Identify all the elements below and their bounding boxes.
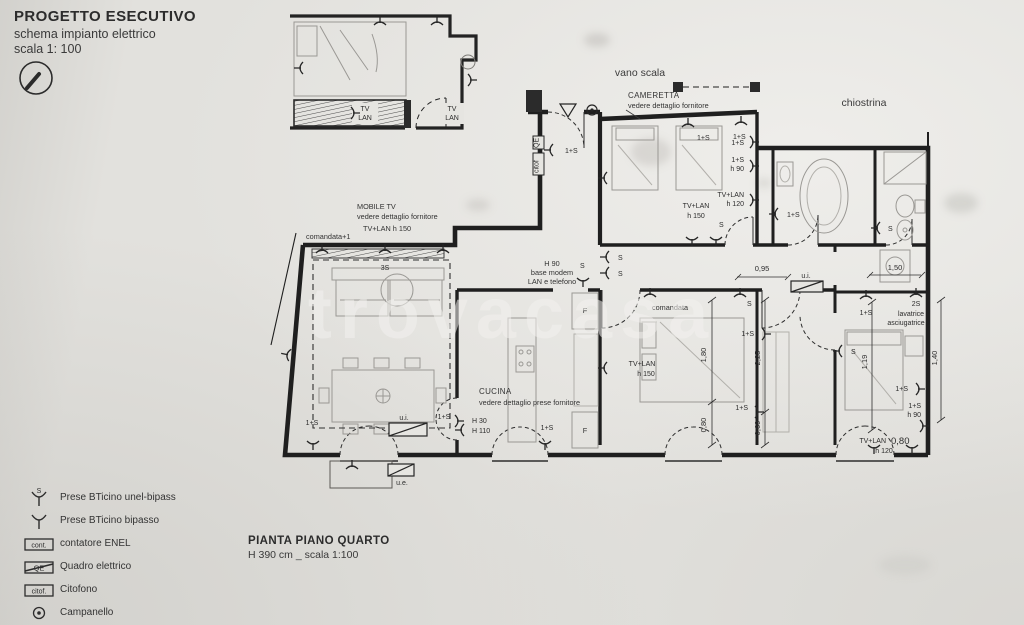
svg-text:LAN: LAN (445, 115, 459, 122)
svg-text:1+S: 1+S (895, 386, 908, 393)
svg-text:1+S: 1+S (541, 425, 554, 432)
campanello-icon (18, 604, 60, 622)
svg-text:1,19: 1,19 (860, 355, 869, 370)
svg-text:0,95: 0,95 (755, 264, 770, 273)
svg-text:citof.: citof. (32, 588, 47, 595)
svg-text:h 120: h 120 (875, 448, 893, 455)
svg-text:TV+LAN: TV+LAN (859, 438, 886, 445)
svg-text:1,50: 1,50 (888, 263, 903, 272)
svg-text:0,69: 0,69 (753, 421, 762, 436)
legend: S Prese BTicino unel-bipass Prese BTicin… (18, 486, 176, 624)
caption-title: PIANTA PIANO QUARTO (248, 534, 390, 549)
comandata-plus1-label: comandata+1 (306, 232, 350, 241)
legend-label: Prese BTicino unel-bipass (60, 492, 176, 503)
legend-label: Quadro elettrico (60, 561, 131, 572)
mobile-tv-label: MOBILE TV (357, 202, 396, 211)
svg-text:LAN: LAN (358, 115, 372, 122)
svg-text:S: S (580, 263, 585, 270)
svg-text:1+S: 1+S (697, 135, 710, 142)
svg-text:F: F (583, 426, 588, 435)
legend-label: contatore ENEL (60, 538, 131, 549)
svg-text:h 120: h 120 (726, 201, 744, 208)
svg-text:h 150: h 150 (637, 371, 655, 378)
legend-item: Campanello (18, 601, 176, 624)
room-cucina: CUCINA (479, 387, 512, 396)
svg-text:cont.: cont. (31, 542, 46, 549)
svg-text:lavatrice: lavatrice (898, 311, 924, 318)
legend-item: QE Quadro elettrico (18, 555, 176, 578)
svg-text:1+S: 1+S (860, 310, 873, 317)
socket-bipasso-icon (18, 509, 60, 533)
legend-label: Prese BTicino bipasso (60, 515, 159, 526)
svg-text:u.e.: u.e. (396, 480, 408, 487)
legend-item: cont. contatore ENEL (18, 532, 176, 555)
legend-item: Prese BTicino bipasso (18, 509, 176, 532)
svg-text:1,40: 1,40 (930, 351, 939, 366)
svg-text:S: S (747, 301, 752, 308)
wardrobe-hatched (294, 100, 406, 126)
svg-text:h 90: h 90 (907, 412, 921, 419)
svg-text:2S: 2S (912, 301, 921, 308)
room-vano-scala: vano scala (615, 67, 665, 79)
mobile-tv-height: TV+LAN h 150 (363, 224, 411, 233)
svg-text:S: S (719, 222, 724, 229)
svg-text:0,80: 0,80 (699, 418, 708, 433)
citof-box-label: citof (534, 160, 541, 173)
svg-text:H 110: H 110 (472, 428, 490, 435)
svg-text:1+S: 1+S (735, 405, 748, 412)
svg-text:TV+LAN: TV+LAN (629, 361, 656, 368)
watermark: trovacasa (308, 274, 716, 354)
room-cameretta: CAMERETTA (628, 91, 680, 100)
legend-label: Campanello (60, 607, 113, 618)
room-cucina-note: vedere dettaglio prese fornitore (479, 398, 580, 407)
drawing-caption: PIANTA PIANO QUARTO H 390 cm _ scala 1:1… (248, 534, 390, 563)
svg-text:S: S (37, 488, 42, 495)
legend-item: S Prese BTicino unel-bipass (18, 486, 176, 509)
legend-label: Citofono (60, 584, 97, 595)
svg-text:TV+LAN: TV+LAN (683, 203, 710, 210)
svg-text:0,80: 0,80 (891, 436, 910, 447)
svg-text:1+S: 1+S (741, 331, 754, 338)
citofono-box-icon: citof. (18, 581, 60, 599)
svg-text:S: S (618, 255, 623, 262)
svg-text:TV: TV (448, 106, 457, 113)
quadro-elettrico-box-icon: QE (18, 558, 60, 576)
qe-box-label: QE (534, 138, 541, 148)
svg-text:1+S: 1+S (565, 148, 578, 155)
room-chiostrina: chiostrina (842, 97, 887, 109)
mobile-tv-note: vedere dettaglio fornitore (357, 212, 438, 221)
tv-cabinet (312, 249, 444, 258)
entry-symbols: QE citof (533, 104, 597, 175)
contatore-box-icon: cont. (18, 535, 60, 553)
svg-text:TV+LAN: TV+LAN (717, 192, 744, 199)
svg-text:3S: 3S (381, 265, 390, 272)
svg-text:S: S (888, 226, 893, 233)
svg-text:1+S: 1+S (731, 140, 744, 147)
svg-text:H 30: H 30 (472, 418, 487, 425)
svg-text:u.i.: u.i. (801, 273, 810, 280)
svg-text:2,25: 2,25 (753, 351, 762, 366)
svg-text:u.i.: u.i. (399, 415, 408, 422)
svg-text:1+S: 1+S (306, 420, 319, 427)
svg-text:h 150: h 150 (687, 213, 705, 220)
svg-text:S: S (851, 349, 856, 356)
svg-text:h 90: h 90 (730, 166, 744, 173)
modem-line1: H 90 (544, 259, 559, 268)
svg-text:1+S: 1+S (438, 414, 451, 421)
svg-text:1+S: 1+S (787, 212, 800, 219)
caption-subtitle: H 390 cm _ scala 1:100 (248, 549, 390, 563)
svg-text:1+S: 1+S (908, 403, 921, 410)
svg-text:TV: TV (361, 106, 370, 113)
svg-text:asciugatrice: asciugatrice (887, 320, 924, 327)
legend-item: citof. Citofono (18, 578, 176, 601)
svg-text:1+S: 1+S (731, 157, 744, 164)
socket-unel-icon: S (18, 486, 60, 510)
room-cameretta-note: vedere dettaglio fornitore (628, 101, 709, 110)
